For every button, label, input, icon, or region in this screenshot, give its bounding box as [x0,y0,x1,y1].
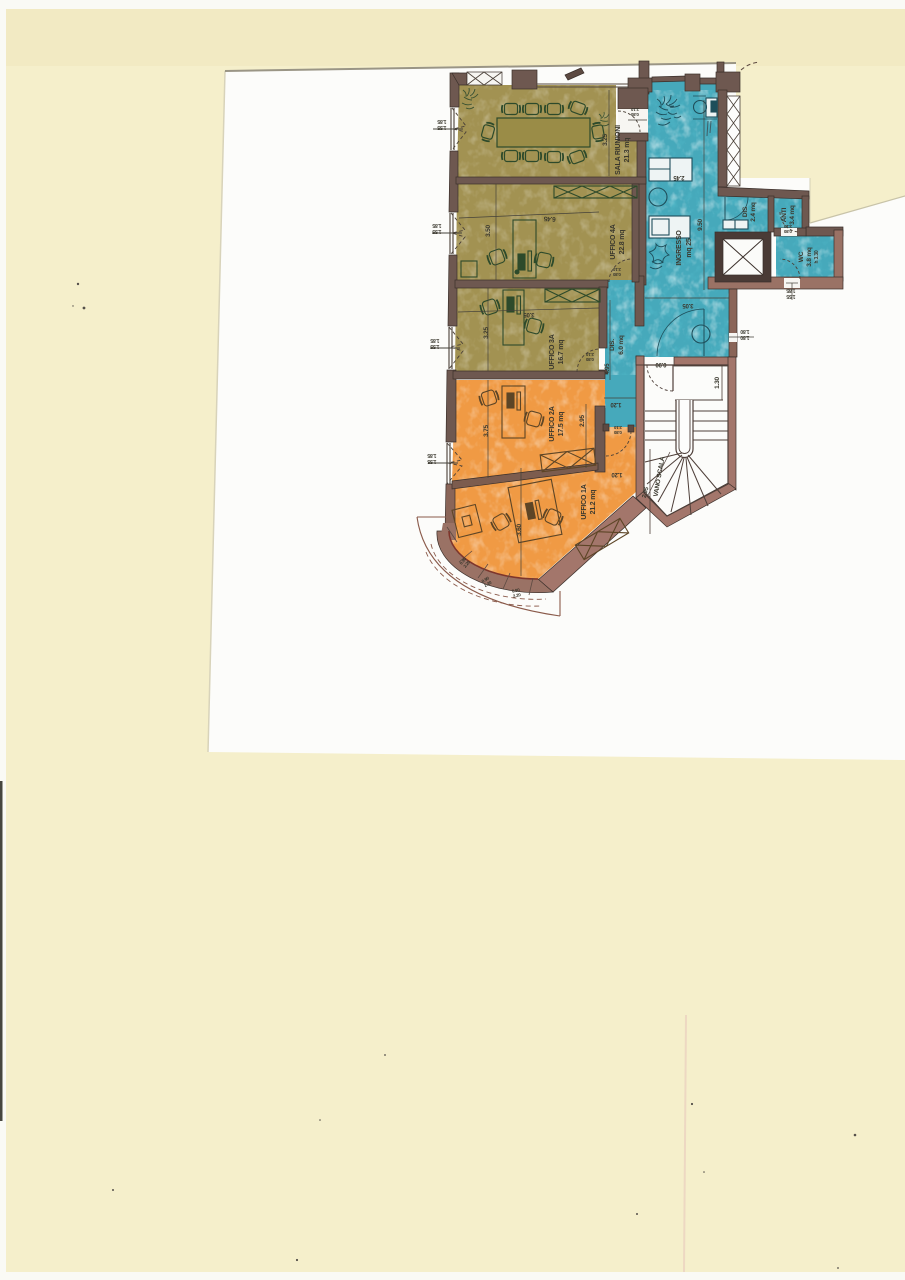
svg-text:22.8 mq: 22.8 mq [619,230,626,255]
svg-text:DIS: DIS [742,206,749,217]
svg-text:UFFICO 2A: UFFICO 2A [549,406,556,441]
svg-text:1.30: 1.30 [714,376,721,388]
svg-text:3.05: 3.05 [682,302,694,308]
svg-text:3.25: 3.25 [483,326,490,338]
svg-text:2.10: 2.10 [585,352,594,357]
svg-text:2.45: 2.45 [673,174,685,180]
svg-text:1.85: 1.85 [430,337,439,343]
svg-text:UFFICO 1A: UFFICO 1A [581,484,588,519]
svg-text:2.10: 2.10 [613,425,622,430]
svg-text:16.7 mq: 16.7 mq [558,340,565,365]
svg-text:6.45: 6.45 [543,215,556,223]
svg-text:2.10: 2.10 [630,107,639,112]
svg-text:3.05: 3.05 [523,311,535,317]
svg-text:3.4 mq: 3.4 mq [789,205,796,225]
svg-text:INGRESSO: INGRESSO [676,230,683,266]
svg-text:6.0 mq: 6.0 mq [618,335,625,355]
svg-text:4.95: 4.95 [605,363,611,375]
svg-text:3.75: 3.75 [483,424,490,436]
svg-text:21.2 mq: 21.2 mq [590,490,597,515]
svg-text:3.25: 3.25 [602,133,609,145]
svg-text:1.85: 1.85 [432,222,441,228]
svg-text:UFFICO 3A: UFFICO 3A [549,334,556,369]
svg-text:UFFICO 4A: UFFICO 4A [610,224,617,259]
svg-text:ANTI: ANTI [781,207,788,222]
svg-text:3.8 mq: 3.8 mq [806,247,813,267]
svg-text:SALA RIUNIONI: SALA RIUNIONI [615,125,622,175]
svg-text:9.50: 9.50 [697,218,704,230]
svg-text:1.80: 1.80 [740,328,749,334]
svg-text:3.50: 3.50 [485,224,492,236]
svg-text:h 3.30: h 3.30 [814,250,820,263]
svg-text:DIS.: DIS. [609,339,616,351]
svg-text:3.60: 3.60 [516,523,523,535]
svg-text:17.5 mq: 17.5 mq [558,412,565,437]
svg-text:2.10: 2.10 [783,224,792,229]
svg-text:1.85: 1.85 [437,118,446,124]
svg-text:2.95: 2.95 [579,414,586,426]
svg-text:0.90: 0.90 [655,361,667,367]
svg-text:1.85: 1.85 [786,287,795,293]
svg-text:21.3 mq: 21.3 mq [624,138,631,163]
svg-text:2.4 mq: 2.4 mq [750,202,757,222]
svg-text:mq 25: mq 25 [686,238,693,258]
svg-text:1.85: 1.85 [427,452,436,458]
svg-text:1.20: 1.20 [610,401,622,407]
svg-text:1.20: 1.20 [611,471,623,477]
svg-text:2.10: 2.10 [612,267,621,272]
svg-text:WC: WC [798,251,805,262]
